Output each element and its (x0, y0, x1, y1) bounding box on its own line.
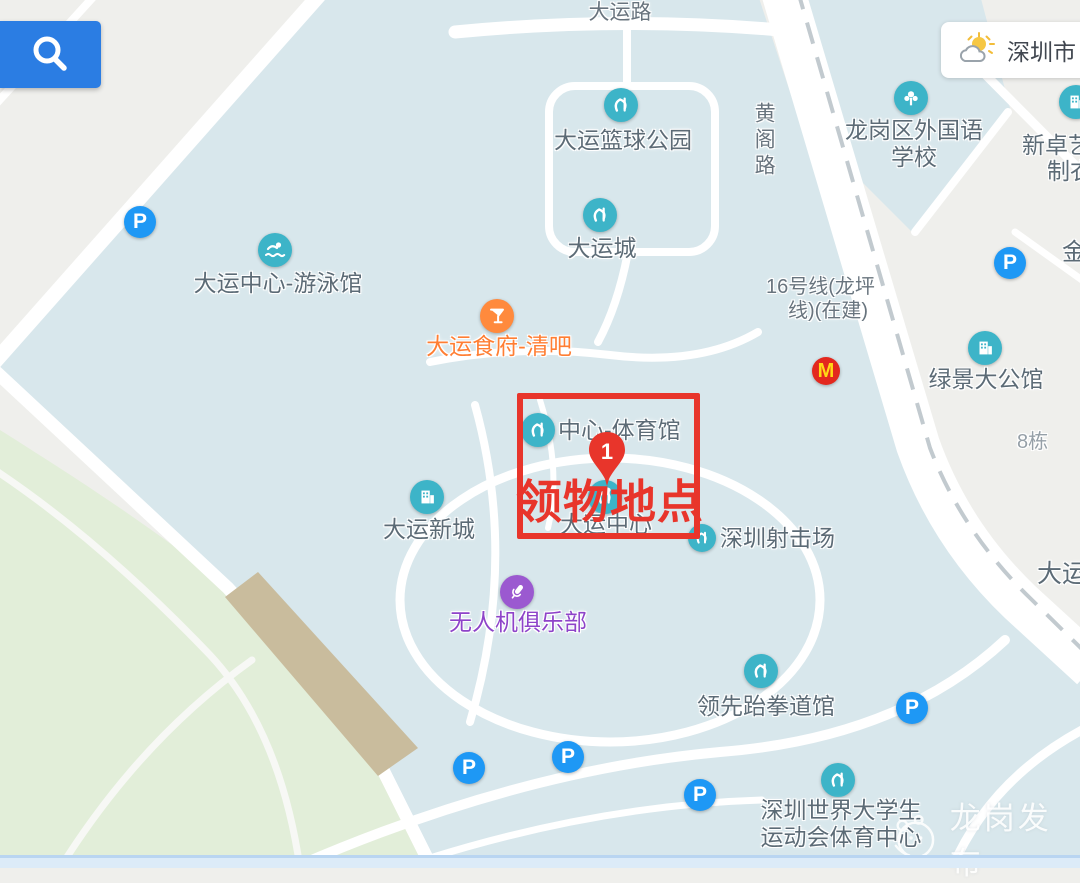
poi-label-restaurant[interactable]: 大运食府-清吧 (426, 334, 572, 359)
poi-label-school[interactable]: 龙岗区外国语 学校 (845, 117, 983, 171)
poi-label-sports-center[interactable]: 深圳世界大学生 运动会体育中心 (761, 797, 922, 851)
pin-number: 1 (601, 439, 613, 464)
poi-label-dayun-city[interactable]: 大运城 (568, 236, 637, 261)
poi-label-xinzhuoyi-1[interactable]: 新卓艺 (1022, 133, 1080, 158)
road-label-dayun: 大运路 (589, 1, 652, 24)
mcdonalds-icon[interactable]: M (812, 357, 840, 385)
poi-label-jin[interactable]: 金 (1062, 240, 1080, 266)
search-button[interactable] (0, 21, 101, 88)
taekwondo-icon[interactable] (744, 654, 778, 688)
parking-icon[interactable]: P (684, 779, 716, 811)
parking-icon[interactable]: P (453, 752, 485, 784)
poi-label-xincheng[interactable]: 大运新城 (383, 517, 475, 542)
basketball-park-icon[interactable] (604, 88, 638, 122)
search-icon (29, 33, 73, 77)
poi-label-xinzhuoyi-2[interactable]: 制衣 (1047, 159, 1080, 184)
dayun-city-icon[interactable] (583, 198, 617, 232)
poi-label-lvjing[interactable]: 绿景大公馆 (929, 367, 1044, 392)
restaurant-icon[interactable] (480, 299, 514, 333)
road-label-huangge: 黄阁路 (752, 102, 775, 180)
parking-icon[interactable]: P (994, 247, 1026, 279)
map-screenshot: { "weather": { "city": "深圳市" }, "roads":… (0, 0, 1080, 868)
parking-icon[interactable]: P (552, 741, 584, 773)
poi-label-basketball-park[interactable]: 大运篮球公园 (554, 128, 692, 153)
microphone-icon[interactable] (500, 575, 534, 609)
swimming-icon[interactable] (258, 233, 292, 267)
lvjing-building-icon[interactable] (968, 331, 1002, 365)
poi-label-drone-club[interactable]: 无人机俱乐部 (449, 610, 587, 635)
weather-city-label: 深圳市 (1007, 33, 1076, 67)
poi-label-swimming[interactable]: 大运中心-游泳馆 (194, 271, 363, 296)
bottom-edge-strip (0, 855, 1080, 868)
poi-label-shooting-range[interactable]: 深圳射击场 (720, 526, 835, 551)
poi-label-building8: 8栋 (1017, 431, 1048, 453)
school-icon[interactable] (894, 81, 928, 115)
parking-icon[interactable]: P (896, 692, 928, 724)
weather-widget[interactable]: 深圳市 (941, 22, 1080, 78)
metro-line-label-2: 线)(在建) (788, 300, 868, 322)
poi-label-dayun-cut[interactable]: 大运 (1037, 561, 1080, 589)
poi-label-taekwondo[interactable]: 领先跆拳道馆 (697, 694, 835, 719)
xincheng-building-icon[interactable] (410, 480, 444, 514)
sports-center-icon[interactable] (821, 763, 855, 797)
metro-line-label-1: 16号线(龙坪 (766, 276, 875, 298)
parking-icon[interactable]: P (124, 206, 156, 238)
annotation-label: 领物地点 (516, 466, 704, 532)
sun-cloud-icon (957, 31, 999, 69)
